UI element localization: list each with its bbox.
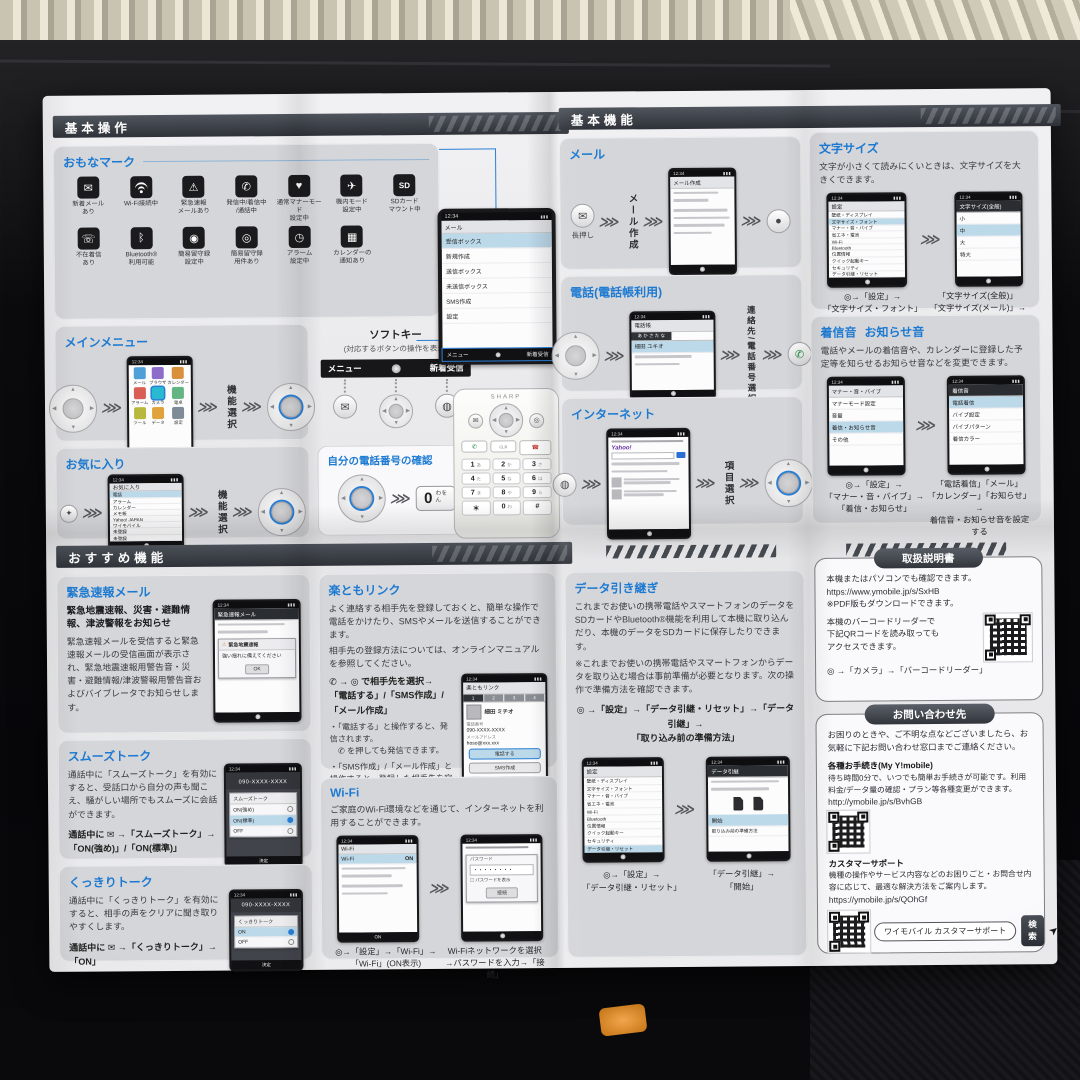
call-key-icon: ✆ [461, 440, 487, 452]
mark-calendar: ▦カレンダーの 通知あり [327, 225, 377, 265]
zero-key-icon: 0 わを ん [416, 485, 456, 510]
screen-row: 送信ボックス [442, 263, 552, 279]
rakutomo-title: 楽ともリンク [328, 580, 546, 599]
data-transfer-body: これまでお使いの携帯電話やスマートフォンのデータをSDカードやBluetooth… [575, 599, 795, 653]
phone-display: 12:34▮▮▮ メール 受信ボックス 新規作成 送信ボックス 未送信ボックス … [437, 208, 556, 365]
clear-key: CLR [490, 440, 516, 452]
screen-row: データ引継・リセット [829, 271, 905, 278]
missed-call-icon: ☏ [77, 228, 99, 250]
data-transfer-note: ※これまでお使いの携帯電話やスマートフォンからデータを取り込む場合は事前準備が必… [575, 656, 795, 697]
dotted-line [446, 379, 448, 392]
flip-phone-keypad: SHARP ✉ ▲▼◀▶ ◎ ✆ CLR ☎ 1あ 2か 3さ 4た 5な 6は… [453, 388, 560, 539]
mail-key-icon: ✉ [333, 395, 357, 419]
manual-box-title: 取扱説明書 [874, 548, 983, 569]
long-press-label: 長押し [571, 230, 595, 241]
dpad-icon: ▲▼◀▶ [489, 403, 523, 437]
phonebook-screen: 12:34▮▮▮ 電話帳 あ か さ た な 細田 ユキオ [629, 311, 716, 401]
calendar-icon: ▦ [341, 225, 363, 247]
option-row: ON [235, 927, 297, 937]
portal-logo: Yahoo! [608, 444, 688, 451]
dpad-icon: ▲▼◀▶ [552, 332, 600, 380]
chevron-icon: ⋙ [642, 213, 665, 230]
dpad-icon: ▲▼◀▶ [49, 384, 97, 432]
rakutomo-step1: ✆ → ◎ で相手先を選択→ [329, 674, 455, 689]
manual-line-3: 本機のバーコードリーダーで 下記QRコードを読み取っても アクセスできます。 [827, 614, 977, 653]
call-button: 電話する [469, 749, 541, 761]
chevron-icon: ⋙ [100, 399, 123, 416]
favorites-key-icon: ✦ [60, 504, 78, 522]
warning-icon: ⚠ [182, 176, 204, 198]
mark-emergency-alert: ⚠緊急速報 メールあり [169, 176, 219, 224]
my-number-title: 自分の電話番号の確認 [327, 453, 465, 469]
screen-row: データ引継・リセット [584, 845, 662, 853]
chevron-icon: ⋙ [240, 398, 263, 415]
end-key-icon: ☎ [519, 440, 551, 455]
dpad-select-icon: ▲▼◀▶ [258, 487, 306, 535]
screen-row: 大 [957, 237, 1021, 250]
emergency-screen: 12:34▮▮▮ 緊急速報メール ⚠緊急地震速報 強い揺れに備えてください OK [213, 599, 302, 723]
option-row: OFF [235, 937, 297, 947]
emergency-alert-dialog: ⚠緊急地震速報 強い揺れに備えてください OK [218, 638, 296, 679]
sd-card-icon [733, 797, 743, 811]
key-star: ＊ [462, 500, 491, 515]
chevron-icon: ⋙ [673, 801, 696, 818]
manual-line-2: ※PDF版もダウンロードできます。 [827, 596, 1031, 610]
text-size-select-screen: 12:34▮▮▮ 文字サイズ(全般) 小 中 大 特大 [954, 192, 1023, 288]
text-size-title: 文字サイズ [819, 138, 1029, 157]
rakutomo-step2: 「電話する」/「SMS作成」/「メール作成」 [329, 688, 455, 718]
call-key-icon: ✆ [787, 342, 811, 366]
text-size-desc: 文字が小さくて読みにくいときは、文字サイズを大きくできます。 [819, 159, 1029, 187]
mail-compose-screen: 12:34▮▮▮ メール作成 [668, 168, 737, 276]
chevron-icon: ⋙ [738, 474, 761, 491]
smooth-talk-screen: 12:34▮▮▮ 090-XXXX-XXXX スムーズトーク ON(強め) ON… [224, 763, 303, 868]
screen-row: Wi-FiON [338, 854, 416, 865]
support-body: 機種の操作やサービス内容などのお困りごと・お問合せ内容に応じて、最適な解決方法を… [829, 869, 1033, 894]
screen-row: その他 [829, 434, 903, 447]
alarm-icon: ◷ [288, 226, 310, 248]
screen-row: バイブ設定 [949, 409, 1023, 422]
chevron-icon: ⋙ [598, 213, 621, 230]
mark-answer-memo-msg: ◎簡易留守録 用件あり [222, 226, 272, 266]
key-5: 5な [492, 472, 521, 484]
decor-stripes [606, 544, 776, 558]
mark-alarm: ◷アラーム 設定中 [274, 226, 324, 266]
mark-wifi: Wi-Fi接続中 [116, 176, 166, 224]
data-caption-2: 「データ引継」→ 「開始」 [687, 868, 797, 893]
show-password-checkbox: ☐ パスワードを表示 [467, 876, 537, 885]
key-0: 0わ [492, 500, 521, 515]
dotted-line [395, 379, 397, 392]
screen-row: 取り込み前の準備方法 [709, 827, 789, 838]
chevron-icon: ⋙ [603, 347, 626, 364]
rakutomo-note1: ・「電話する」と操作すると、発信されます。 [329, 721, 455, 746]
sd-card-icon: SD [393, 174, 415, 196]
key-6: 6は [523, 472, 552, 484]
settings-screen-data: 12:34▮▮▮ 設定 壁紙・ディスプレイ 文字サイズ・フォント マナー・音・バ… [581, 758, 664, 864]
screen-row: バイブパターン [949, 421, 1023, 434]
ringtone-title: 着信音お知らせ音 [820, 322, 1030, 341]
browser-key-icon: ◍ [553, 472, 577, 496]
search-button: 検索 [1021, 915, 1044, 946]
item-select-label: 項目選択 [720, 460, 734, 506]
new-mail-icon: ✉ [77, 177, 99, 199]
chevron-icon: ⋙ [914, 417, 937, 434]
support-qr-code [829, 912, 869, 952]
manual-qr-code [985, 614, 1031, 660]
contact-box: お問い合わせ先 お困りのときや、ご不明な点などございましたら、お気軽に下記お問い… [815, 712, 1045, 954]
dpad-icon: ▲▼◀▶ [379, 394, 413, 428]
menu-tile: メール [131, 367, 148, 386]
rakutomo-link-panel: 楽ともリンク よく連絡する相手先を登録しておくと、簡単な操作で電話をかけたり、S… [318, 572, 558, 770]
screen-row: SMS作成 [442, 293, 552, 309]
menu-tile: カレンダー [167, 367, 189, 386]
key-3: 3さ [523, 458, 552, 470]
clear-talk-panel: くっきりトーク 通話中に「くっきりトーク」を有効にすると、相手の声をクリアに聞き… [59, 864, 314, 962]
menu-tile: アラーム [131, 387, 148, 406]
chevron-icon: ⋙ [187, 504, 210, 521]
rakutomo-body1: よく連絡する相手先を登録しておくと、簡単な操作で電話をかけたり、SMSやメールを… [329, 601, 547, 642]
option-row: OFF [230, 826, 296, 837]
rakutomo-body2: 相手先の登録方法については、オンラインマニュアルを参照してください。 [329, 643, 547, 671]
password-field: ・・・・・・・・ [470, 864, 534, 876]
favorites-screen: 12:34▮▮▮ お気に入り 電話 アラーム カレンダー メモ帳 Yahoo! … [108, 474, 185, 552]
procedures-qr-code [828, 811, 868, 851]
smooth-talk-title: スムーズトーク [68, 746, 302, 765]
settings-screen: 12:34▮▮▮ 設定 壁紙・ディスプレイ 文字サイズ・フォント マナー・音・バ… [826, 193, 907, 289]
screen-row: 未送信ボックス [442, 278, 552, 294]
screen-row: 設定 [442, 308, 552, 324]
wifi-caption-2: Wi-Fiネットワークを選択 →パスワードを入力→「接続」 [440, 944, 549, 981]
screen-row: 小 [956, 213, 1020, 226]
screen-row: マナーモード設定 [829, 398, 903, 411]
smooth-talk-steps: 通話中に ✉ →「スムーズトーク」→ 「ON(強め)」/「ON(標準)」 [68, 826, 218, 856]
ringtone-caption-1: ◎→「設定」→ 「マナー・音・バイブ」→ 「着信・お知らせ」 [822, 478, 927, 539]
chevron-icon: ⋙ [428, 880, 451, 897]
ringtone-caption-2: 「電話着信」「メール」 「カレンダー」「お知らせ」→ 着信音・お知らせ音を設定す… [927, 478, 1032, 539]
section-title: 基本操作 [65, 117, 131, 137]
manner-screen: 12:34▮▮▮ マナー・音・バイブ マナーモード設定 音量 着信・お知らせ音 … [826, 377, 905, 477]
marks-grid: ✉新着メール あり Wi-Fi接続中 ⚠緊急速報 メールあり ✆発信中/着信中 … [63, 174, 430, 268]
rakutomo-note2: ✆ を押しても発信できます。 [330, 745, 456, 758]
chevron-icon: ⋙ [389, 490, 412, 507]
emergency-title: 緊急速報メール [66, 582, 300, 601]
send-key-icon: ● [766, 209, 790, 233]
bluetooth-icon: ᛒ [130, 227, 152, 249]
screen-row: 細田 ユキオ [632, 341, 714, 354]
section-header-basic-functions: 基本機能 [559, 104, 1061, 130]
screen-row: 新規作成 [442, 248, 552, 264]
key-1: 1あ [461, 458, 490, 470]
data-transfer-screen: 12:34▮▮▮ データ引継 開始 取り込み前の準備方法 [706, 757, 791, 863]
screen-row: 未登録 [110, 535, 182, 542]
chevron-icon: ⋙ [719, 346, 742, 363]
dpad-select-icon: ▲▼◀▶ [338, 474, 386, 522]
mark-sd-card: SDSDカード マウント中 [379, 174, 429, 222]
option-row: ON(強め) [230, 804, 296, 816]
airplane-icon: ✈ [341, 174, 363, 196]
mark-answer-memo-set: ◉簡易留守録 設定中 [169, 227, 219, 267]
favorites-panel: お気に入り ✦ ⋙ 12:34▮▮▮ お気に入り 電話 アラーム カレンダー メ… [55, 446, 310, 540]
internet-title: インターネット [571, 404, 793, 423]
screen-row: 着信カラー [950, 433, 1024, 446]
key-9: 9ら [523, 486, 552, 498]
section-header-basic-operations: 基本操作 [53, 112, 569, 138]
menu-tile: データ [149, 407, 166, 426]
key-8: 8や [492, 486, 521, 498]
menu-tile: ツール [131, 407, 148, 426]
screen-title: メール [442, 220, 552, 234]
data-caption-1: ◎→「設定」→ 「データ引継・リセット」 [577, 868, 687, 893]
number-keypad: 1あ 2か 3さ 4た 5な 6は 7ま 8や 9ら ＊ 0わ # [461, 458, 551, 516]
key-4: 4た [462, 472, 491, 484]
clear-talk-screen: 12:34▮▮▮ 090-XXXX-XXXX くっきりトーク ON OFF 決定 [229, 889, 304, 972]
smooth-talk-body: 通話中に「スムーズトーク」を有効にすると、受話口から自分の声も聞こえ、騒がしい場… [68, 768, 218, 822]
connect-button: 接続 [486, 887, 518, 898]
screen-row: 音量 [829, 410, 903, 423]
procedures-url: http://ymobile.jp/s/BvhGB [828, 794, 1032, 808]
phone-icon: ✆ [235, 175, 257, 197]
contact-box-title: お問い合わせ先 [865, 704, 995, 725]
section-title: 基本機能 [571, 109, 637, 129]
mark-new-mail: ✉新着メール あり [63, 176, 113, 224]
connector-line [439, 148, 496, 211]
mark-bluetooth: ᛒBluetooth® 利用可能 [116, 227, 166, 267]
screen-row: 特大 [957, 249, 1021, 262]
smooth-talk-panel: スムーズトーク 通話中に「スムーズトーク」を有効にすると、受話口から自分の声も聞… [58, 738, 313, 860]
data-transfer-title: データ引き継ぎ [574, 578, 794, 597]
main-menu-panel: メインメニュー ▲▼◀▶ ⋙ 12:34▮▮▮ メール ブラウザ カレンダー ア… [54, 324, 309, 442]
clear-talk-steps: 通話中に ✉ →「くっきりトーク」→ 「ON」 [69, 939, 223, 969]
chevron-icon: ⋙ [81, 504, 104, 521]
select-function-label: 機能選択 [223, 384, 237, 430]
data-transfer-steps: ◎ →「設定」→「データ引継・リセット」→「データ引継」→ 「取り込み前の準備方… [575, 701, 795, 746]
dpad-select-icon: ▲▼◀▶ [764, 458, 812, 506]
support-url: https://ymobile.jp/s/QOhGf [829, 892, 1033, 906]
pamphlet: 基本操作 おもなマーク ✉新着メール あり Wi-Fi接続中 ⚠緊急速報 メール… [43, 88, 1058, 972]
screen-row: 電話着信 [949, 397, 1023, 410]
manual-caption: ◎ →「カメラ」→「バーコードリーダー」 [827, 663, 1031, 677]
wifi-password-screen: 12:34▮▮▮ パスワード ・・・・・・・・ ☐ パスワードを表示 接続 [461, 834, 544, 942]
chevron-icon: ⋙ [740, 212, 763, 229]
mail-key-icon: ✉ [468, 413, 483, 428]
answer-memo-message-icon: ◎ [236, 226, 258, 248]
ok-button: OK [245, 664, 269, 674]
mark-airplane-mode: ✈機内モード 設定中 [327, 174, 377, 222]
phone-panel: 電話(電話帳利用) ▲▼◀▶ ⋙ 12:34▮▮▮ 電話帳 あ か さ た な … [560, 274, 803, 392]
marks-title: おもなマーク [63, 151, 429, 171]
dotted-line [344, 380, 346, 393]
clear-talk-dialog: くっきりトーク ON OFF [234, 915, 298, 949]
main-menu-title: メインメニュー [64, 332, 298, 351]
mail-key-icon: ✉ [571, 204, 595, 228]
ringtone-detail-screen: 12:34▮▮▮ 着信音 電話着信 バイブ設定 バイブパターン 着信カラー [947, 376, 1026, 476]
brand-label: SHARP [491, 394, 522, 400]
main-marks-panel: おもなマーク ✉新着メール あり Wi-Fi接続中 ⚠緊急速報 メールあり ✆発… [53, 143, 440, 320]
chevron-icon: ⋙ [761, 346, 784, 363]
browser-screen: 12:34▮▮▮ Yahoo! [606, 428, 691, 540]
camera-key-icon: ◎ [529, 413, 544, 428]
answer-memo-icon: ◉ [183, 227, 205, 249]
chevron-icon: ⋙ [196, 399, 219, 416]
contact-intro: お困りのときや、ご不明な点などございましたら、お気軽に下記お問い合わせ窓口までご… [828, 727, 1032, 754]
option-row: ON(標準) [230, 815, 296, 827]
compose-step-label: メール作成 [624, 193, 638, 251]
chevron-icon: ⋙ [694, 475, 717, 492]
menu-tile: 電卓 [167, 387, 189, 406]
mark-missed-call: ☏不在着信 あり [64, 227, 114, 267]
key-7: 7ま [462, 486, 491, 498]
ringtone-desc: 電話やメールの着信音や、カレンダーに登録した予定等を知らせるお知らせ音などを変更… [821, 343, 1031, 371]
menu-tile: ブラウザ [149, 367, 166, 386]
clear-talk-title: くっきりトーク [69, 872, 303, 891]
wifi-icon [130, 176, 152, 198]
mark-manner-mode: ♥通常マナーモード 設定中 [274, 175, 324, 223]
phone-title: 電話(電話帳利用) [570, 282, 792, 301]
clear-talk-body: 通話中に「くっきりトーク」を有効にすると、相手の声をクリアに聞き取りやすくします… [69, 894, 223, 935]
search-keyword-box: ワイモバイル カスタマーサポート [874, 921, 1016, 941]
mark-calling: ✆発信中/着信中 /通話中 [221, 175, 271, 223]
manner-mode-icon: ♥ [288, 175, 310, 197]
password-dialog: パスワード ・・・・・・・・ ☐ パスワードを表示 接続 [466, 854, 538, 903]
chevron-icon: ⋙ [919, 231, 942, 248]
center-key-icon [391, 364, 400, 373]
section-header-recommended: おすすめ機能 [56, 542, 572, 568]
wifi-body: ご家庭のWi-Fi環境などを通じて、インターネットを利用することができます。 [330, 802, 548, 830]
contact-select-label: 連絡先/電話番号選択 [745, 305, 758, 404]
chevron-icon: ⋙ [231, 503, 254, 520]
ringtone-panel: 着信音お知らせ音 電話やメールの着信音や、カレンダーに登録した予定等を知らせるお… [810, 314, 1042, 524]
key-hash: # [523, 500, 552, 515]
emergency-body: 緊急速報メールを受信すると緊急速報メールの受信画面が表示され、緊急地震速報用警告… [67, 634, 208, 714]
select-function-label: 機能選択 [214, 489, 228, 535]
internet-panel: インターネット ◍ ⋙ 12:34▮▮▮ Yahoo! [561, 396, 804, 526]
my-number-panel: 自分の電話番号の確認 ▲▼◀▶ ⋙ 0 わを ん [317, 445, 476, 536]
orange-object [598, 1003, 647, 1036]
wifi-title: Wi-Fi [330, 784, 548, 800]
data-transfer-panel: データ引き継ぎ これまでお使いの携帯電話やスマートフォンのデータをSDカードやB… [564, 570, 807, 958]
screen-row: 着信・お知らせ音 [829, 422, 903, 435]
favorites-title: お気に入り [65, 454, 299, 473]
contact-avatar [466, 704, 481, 719]
wifi-caption-1: ◎→「設定」→「Wi-Fi」→ 「Wi-Fi」(ON表示) [331, 945, 440, 982]
screen-row: 開始 [709, 815, 789, 828]
dpad-select-icon: ▲▼◀▶ [267, 382, 315, 430]
chevron-icon: ⋙ [580, 476, 603, 493]
mail-panel: メール ✉ 長押し ⋙ メール作成 ⋙ 12:34▮▮▮ メール作成 ⋙ ● [559, 136, 802, 270]
mail-title: メール [569, 144, 791, 163]
menu-tile: 設定 [168, 407, 190, 426]
emergency-mail-panel: 緊急速報メール 緊急地震速報、災害・避難情報、津波警報をお知らせ 緊急速報メール… [56, 574, 311, 734]
wifi-panel: Wi-Fi ご家庭のWi-Fi環境などを通じて、インターネットを利用することがで… [320, 776, 559, 960]
section-title: おすすめ機能 [68, 547, 167, 567]
main-menu-screen: 12:34▮▮▮ メール ブラウザ カレンダー アラーム カメラ 電卓 ツール … [127, 356, 194, 460]
wifi-settings-screen: 12:34▮▮▮ Wi-Fi Wi-FiON ON [336, 835, 419, 943]
sms-button: SMS作成 [469, 763, 541, 775]
screen-row: 受信ボックス [442, 233, 552, 249]
smooth-talk-dialog: スムーズトーク ON(強め) ON(標準) OFF [229, 792, 297, 838]
text-size-panel: 文字サイズ 文字が小さくて読みにくいときは、文字サイズを大きくできます。 12:… [809, 130, 1040, 310]
screen-row: 中 [957, 225, 1021, 238]
manual-box: 取扱説明書 本機またはパソコンでも確認できます。 https://www.ymo… [814, 556, 1043, 702]
menu-tile: カメラ [149, 387, 166, 406]
emergency-lead: 緊急地震速報、災害・避難情報、津波警報をお知らせ [67, 604, 207, 632]
sd-card-icon [753, 797, 763, 811]
key-2: 2か [492, 458, 521, 470]
procedures-body: 待ち時間0分で、いつでも簡単お手続きが可能です。利用料金/データ量の確認・プラン… [828, 771, 1032, 796]
